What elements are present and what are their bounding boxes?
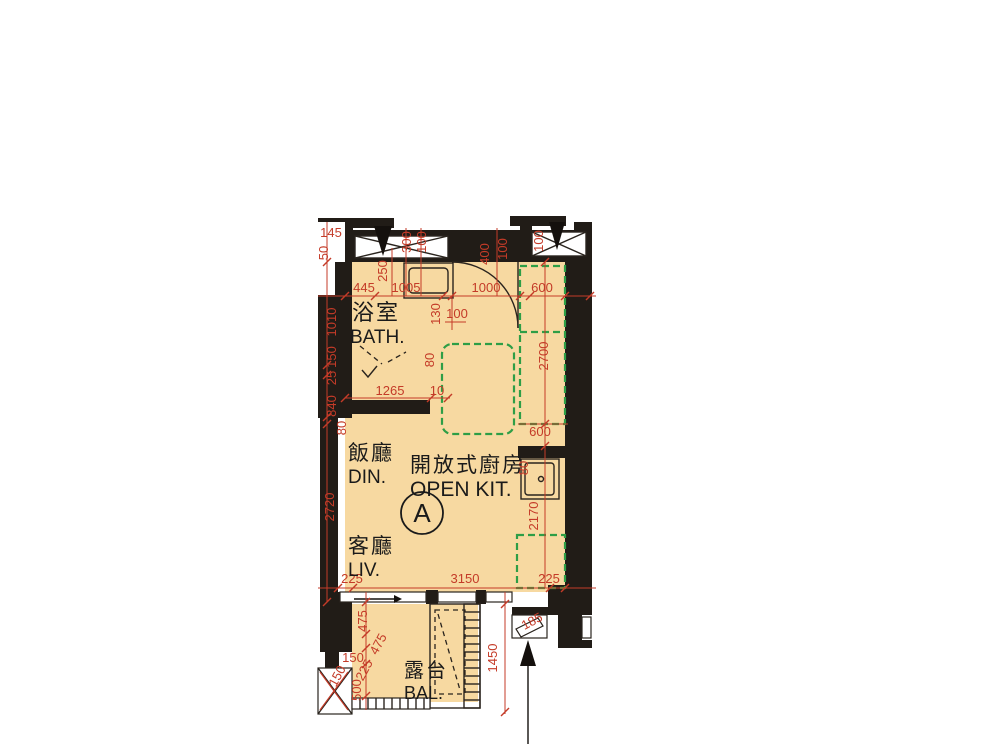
dim-145: 145 — [320, 225, 342, 240]
dim-1450: 1450 — [485, 644, 500, 673]
wall-notch — [582, 617, 591, 638]
dim-50: 50 — [316, 246, 331, 260]
dim-2700: 2700 — [536, 342, 551, 371]
floor-plan: 145 50 300 100 250 445 1005 1000 600 400… — [0, 0, 1000, 750]
dim-100-entry: 100 — [495, 238, 510, 260]
dim-100-top: 100 — [414, 231, 429, 253]
dim-80-bathdoor: 80 — [422, 353, 437, 367]
dim-1265: 1265 — [376, 383, 405, 398]
dim-3150: 3150 — [451, 571, 480, 586]
dim-600-top: 600 — [531, 280, 553, 295]
dim-300: 300 — [399, 231, 414, 253]
dim-2720: 2720 — [322, 493, 337, 522]
dim-500: 500 — [349, 679, 364, 701]
room-balcony-en: BAL. — [404, 683, 443, 703]
room-kitchen-zh: 開放式廚房 — [410, 454, 525, 477]
dim-250: 250 — [375, 260, 390, 282]
unit-letter: A — [413, 498, 431, 528]
floor-plan-page: 145 50 300 100 250 445 1005 1000 600 400… — [0, 0, 1000, 750]
room-bath-zh: 浴室 — [352, 300, 400, 325]
dim-150-left: 150 — [324, 346, 339, 368]
dim-1005: 1005 — [392, 280, 421, 295]
dim-25: 25 — [324, 371, 339, 385]
dim-130: 130 — [428, 303, 443, 325]
dim-475-a: 475 — [355, 610, 370, 632]
dim-225-right: 225 — [538, 571, 560, 586]
dim-10: 10 — [430, 383, 444, 398]
dim-2170: 2170 — [526, 502, 541, 531]
dim-445: 445 — [353, 280, 375, 295]
room-living-zh: 客廳 — [348, 535, 394, 558]
room-dining-zh: 飯廳 — [348, 442, 394, 465]
dim-1010: 1010 — [324, 308, 339, 337]
dim-80-left: 80 — [334, 421, 349, 435]
room-living-en: LIV. — [348, 560, 380, 581]
dim-100-bath: 100 — [446, 306, 468, 321]
dim-100-window: 100 — [531, 230, 546, 252]
dim-600-counter: 600 — [529, 424, 551, 439]
room-bath-en: BATH. — [350, 327, 405, 348]
room-balcony-zh: 露台 — [404, 659, 448, 682]
room-dining-en: DIN. — [348, 467, 386, 488]
dim-1000: 1000 — [472, 280, 501, 295]
up-arrow-drain-icon — [520, 640, 536, 666]
dim-400: 400 — [477, 243, 492, 265]
dim-840: 840 — [324, 395, 339, 417]
